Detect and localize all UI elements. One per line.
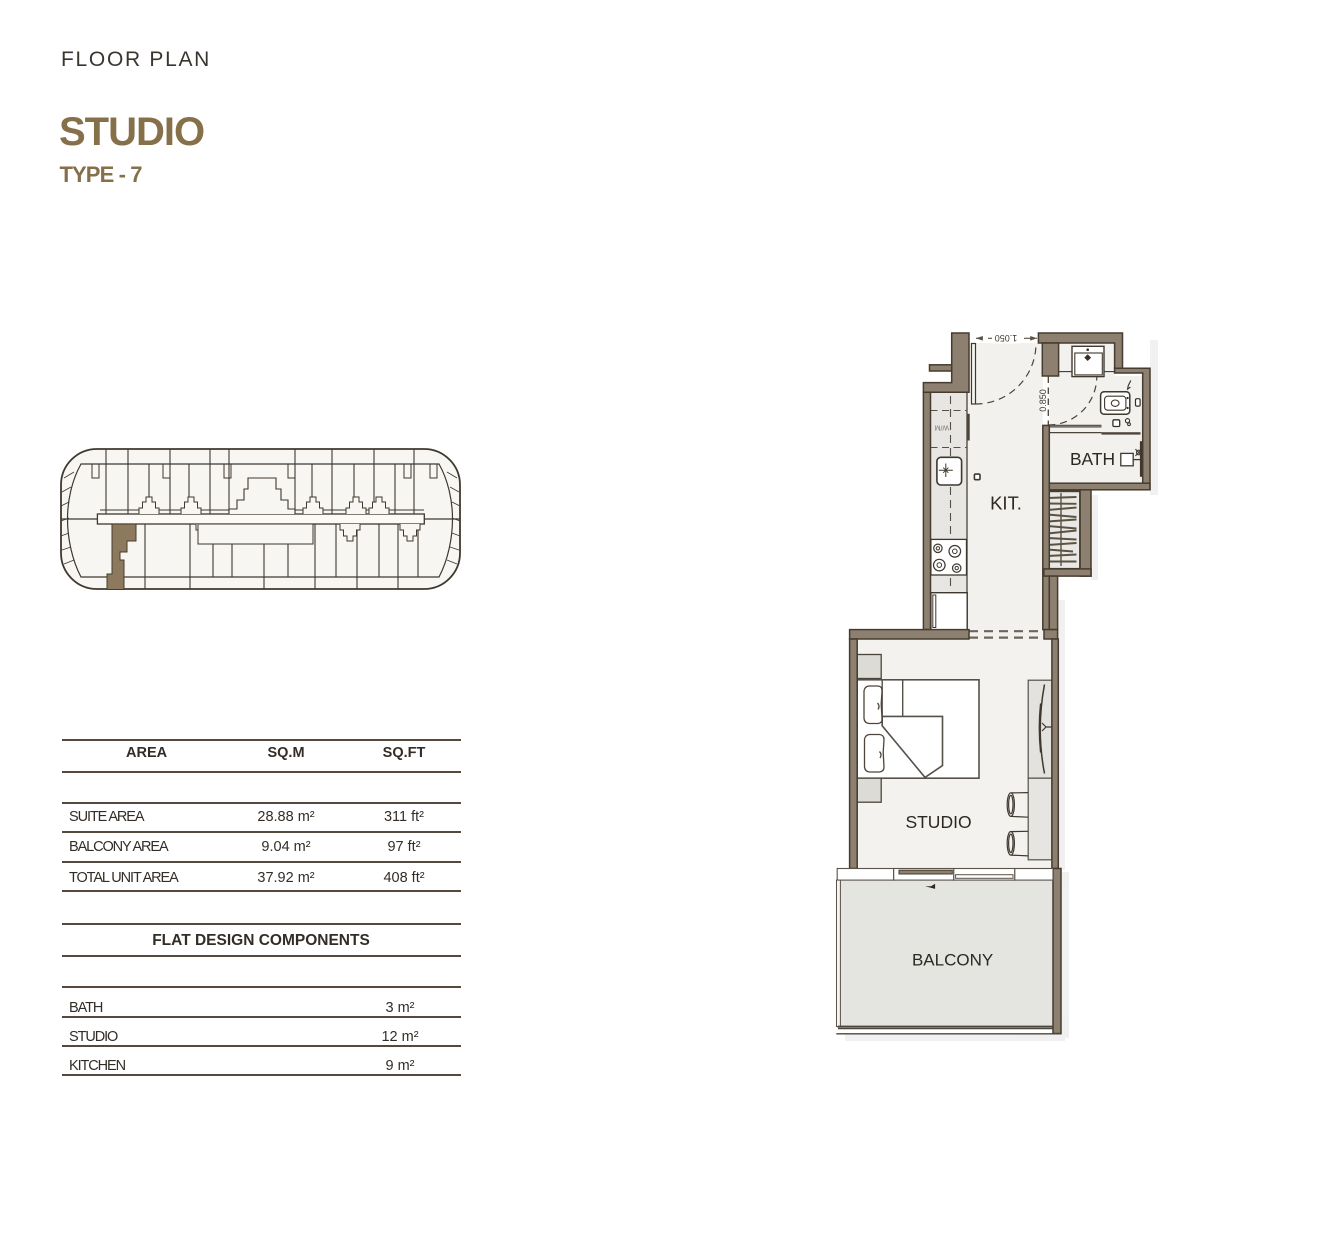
svg-text:BATH: BATH xyxy=(1070,449,1115,469)
svg-text:1.050: 1.050 xyxy=(995,333,1018,343)
svg-text:KIT.: KIT. xyxy=(990,493,1022,514)
svg-text:0.850: 0.850 xyxy=(1038,389,1048,412)
svg-text:W/M: W/M xyxy=(934,424,949,431)
svg-text:BALCONY: BALCONY xyxy=(912,951,993,970)
svg-text:STUDIO: STUDIO xyxy=(905,812,971,832)
